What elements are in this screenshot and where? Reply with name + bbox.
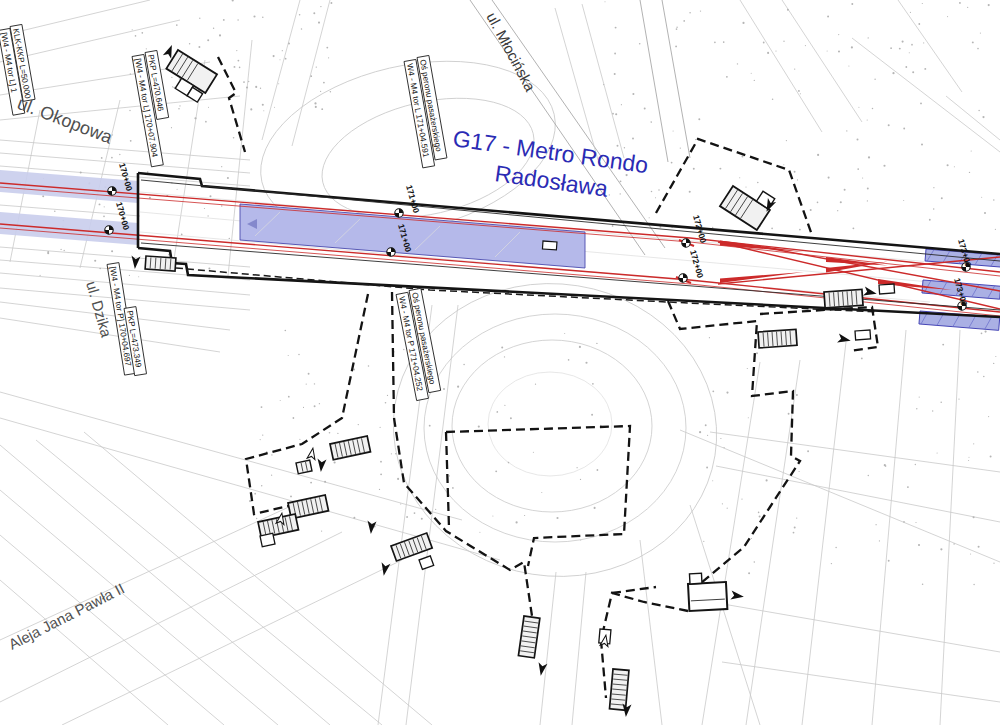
vent-shaft (296, 460, 312, 474)
vent-shaft (419, 556, 434, 570)
street-mlocinska: ul. Młocińska (483, 9, 539, 94)
station-title: G17 - Metro Rondo Radosława (451, 125, 650, 202)
terrain-dots (699, 331, 996, 586)
platform-structure (542, 241, 557, 250)
street-okopowa: ul. Okopowa (15, 93, 117, 148)
street-aleja-jana-pawla: Aleja Jana Pawła II (6, 580, 127, 653)
stair-entrance-s3 (610, 669, 629, 710)
access-arrow (307, 447, 317, 459)
entrance-building-nw (160, 50, 217, 103)
exit-arrow (379, 562, 390, 576)
vent-shaft (855, 330, 871, 340)
chainage-label: 172+00 (688, 249, 706, 280)
survey-labels: KLK-KKP L=50.000 [W4 - M4 tor L] 1 PKP L… (0, 24, 447, 400)
stair-entrance-east-lower (758, 329, 797, 348)
stair-entrance-west (145, 256, 176, 271)
stair-entrance-sw3 (258, 514, 298, 538)
stair-entrance-s2 (518, 616, 539, 658)
exit-arrow (316, 459, 326, 473)
vent-shaft (260, 533, 275, 546)
site-plan-drawing: 170+00 170+00 171+00 171+00 172+00 172+0… (0, 0, 1000, 725)
stair-entrance-east (824, 289, 863, 308)
chainage-label: 171+00 (404, 184, 422, 215)
plan-canvas: 170+00 170+00 171+00 171+00 172+00 172+0… (0, 0, 1000, 725)
terrain-dots (599, 1, 996, 230)
exit-arrow (837, 334, 852, 346)
exit-arrow (730, 591, 744, 602)
vent-shaft (879, 284, 895, 294)
stair-entrance-sw1 (330, 436, 370, 460)
